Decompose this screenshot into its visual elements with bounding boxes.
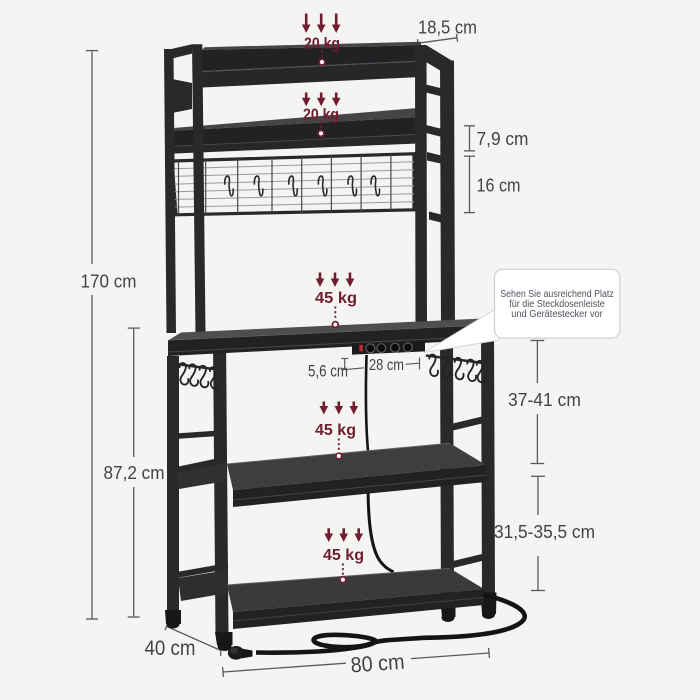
svg-text:7,9 cm: 7,9 cm: [477, 129, 529, 149]
svg-text:40 cm: 40 cm: [145, 636, 196, 660]
svg-text:31,5-35,5 cm: 31,5-35,5 cm: [494, 522, 595, 542]
svg-text:20 kg: 20 kg: [303, 107, 339, 124]
svg-text:16 cm: 16 cm: [477, 176, 521, 196]
svg-text:20 kg: 20 kg: [304, 35, 340, 52]
svg-text:80 cm: 80 cm: [350, 650, 406, 678]
svg-text:170 cm: 170 cm: [81, 272, 137, 292]
svg-text:und Gerätestecker vor: und Gerätestecker vor: [511, 308, 603, 320]
svg-text:87,2 cm: 87,2 cm: [104, 463, 165, 483]
svg-text:18,5 cm: 18,5 cm: [418, 18, 477, 38]
svg-text:45 kg: 45 kg: [323, 547, 364, 564]
svg-text:45 kg: 45 kg: [315, 290, 357, 307]
svg-text:28 cm: 28 cm: [369, 357, 404, 374]
svg-text:37-41 cm: 37-41 cm: [508, 390, 581, 410]
svg-text:45 kg: 45 kg: [315, 422, 356, 439]
svg-text:5,6 cm: 5,6 cm: [308, 363, 348, 381]
